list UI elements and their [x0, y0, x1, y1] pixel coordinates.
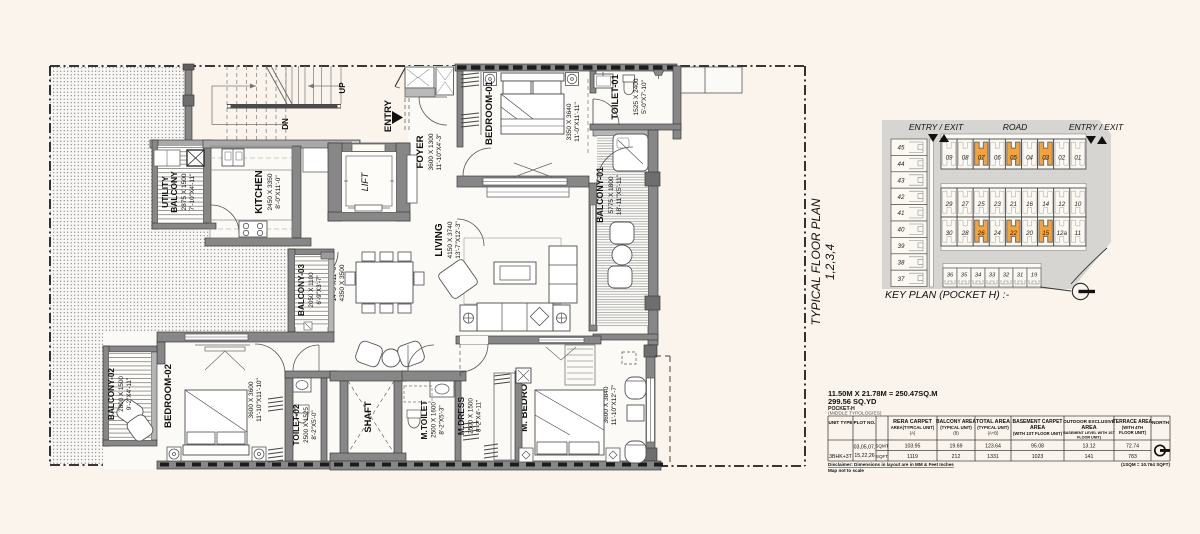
- svg-text:3BHK+3T: 3BHK+3T: [829, 454, 852, 460]
- svg-text:11'-10"X12'-7": 11'-10"X12'-7": [611, 384, 618, 425]
- svg-text:1525 X 2400: 1525 X 2400: [633, 78, 640, 115]
- svg-text:OUTDOOR EXCLUSIVE: OUTDOOR EXCLUSIVE: [1063, 419, 1115, 424]
- svg-text:BALCONY-02: BALCONY-02: [107, 368, 116, 420]
- svg-text:32: 32: [1003, 273, 1010, 279]
- svg-text:NORTH: NORTH: [1152, 420, 1170, 426]
- svg-text:35: 35: [961, 273, 968, 279]
- svg-text:34: 34: [975, 273, 981, 279]
- svg-text:40: 40: [898, 227, 905, 234]
- svg-text:5'-0"X7'-10": 5'-0"X7'-10": [641, 79, 648, 114]
- svg-text:KITCHEN: KITCHEN: [254, 170, 265, 214]
- svg-text:212: 212: [952, 454, 961, 460]
- svg-text:(1SQM = 10.764 SQFT): (1SQM = 10.764 SQFT): [1121, 462, 1170, 467]
- svg-text:BEDROOM-01: BEDROOM-01: [484, 80, 495, 145]
- svg-text:2800 X 1500: 2800 X 1500: [118, 376, 125, 412]
- svg-text:2500 X 1600: 2500 X 1600: [431, 402, 438, 438]
- svg-text:09: 09: [946, 155, 953, 162]
- svg-text:33: 33: [989, 273, 996, 279]
- svg-text:7'-10"X4'-11": 7'-10"X4'-11": [189, 173, 196, 211]
- svg-text:LIFT: LIFT: [360, 171, 370, 191]
- svg-text:TYPICAL FLOOR PLAN: TYPICAL FLOOR PLAN: [809, 198, 823, 325]
- svg-text:24: 24: [993, 230, 1001, 237]
- svg-text:1331: 1331: [987, 454, 999, 460]
- svg-text:2050 X 1100: 2050 X 1100: [308, 272, 315, 308]
- svg-text:(B): (B): [953, 431, 959, 436]
- svg-text:299.56 SQ.YD: 299.56 SQ.YD: [828, 397, 877, 406]
- svg-text:10: 10: [1074, 201, 1081, 208]
- svg-text:BALCONY: BALCONY: [169, 171, 179, 213]
- svg-text:44: 44: [898, 161, 905, 168]
- svg-text:BALCONY-01: BALCONY-01: [595, 167, 605, 223]
- svg-text:8'-2"X4'-11": 8'-2"X4'-11": [476, 400, 483, 432]
- svg-text:41: 41: [898, 210, 905, 217]
- svg-text:2500 X 1500: 2500 X 1500: [468, 398, 475, 434]
- svg-text:Disclaimer: Dimensions in layo: Disclaimer: Dimensions in layout are in …: [828, 462, 954, 467]
- svg-text:3350 X 3640: 3350 X 3640: [566, 103, 573, 140]
- svg-text:13'-7"X12'-3": 13'-7"X12'-3": [455, 221, 462, 259]
- svg-text:ENTRY / EXIT: ENTRY / EXIT: [1069, 122, 1124, 132]
- svg-text:22: 22: [1009, 230, 1017, 237]
- svg-text:6'-9"X3'-7": 6'-9"X3'-7": [316, 275, 323, 304]
- svg-text:11.50M X 21.78M = 250.47SQ.M: 11.50M X 21.78M = 250.47SQ.M: [828, 389, 937, 398]
- svg-text:(A+B): (A+B): [988, 431, 999, 436]
- svg-text:23: 23: [993, 201, 1001, 208]
- svg-text:783: 783: [1128, 454, 1137, 460]
- svg-text:123.64: 123.64: [985, 444, 1001, 450]
- svg-text:19: 19: [1031, 273, 1038, 279]
- svg-text:19.69: 19.69: [950, 444, 963, 450]
- svg-text:FLOOR UNIT): FLOOR UNIT): [1077, 436, 1102, 440]
- svg-text:TOILET-01: TOILET-01: [610, 74, 620, 119]
- svg-text:2875 X 1500: 2875 X 1500: [181, 173, 188, 210]
- svg-text:AREA(TYPICAL UNIT): AREA(TYPICAL UNIT): [891, 425, 935, 430]
- svg-text:29: 29: [945, 201, 953, 208]
- svg-text:12: 12: [1058, 201, 1065, 208]
- svg-text:UP: UP: [338, 82, 347, 94]
- svg-text:11'-10"X4'-3": 11'-10"X4'-3": [436, 133, 443, 171]
- svg-text:28: 28: [961, 230, 969, 237]
- svg-text:27: 27: [961, 201, 969, 208]
- svg-text:PLOT NO.: PLOT NO.: [854, 420, 876, 425]
- svg-text:KEY PLAN (POCKET H) :-: KEY PLAN (POCKET H) :-: [885, 289, 1010, 301]
- svg-text:08: 08: [962, 155, 969, 162]
- svg-text:03,05,07,: 03,05,07,: [854, 445, 876, 451]
- svg-text:DN: DN: [281, 118, 290, 130]
- svg-text:(TYPICAL UNIT): (TYPICAL UNIT): [977, 425, 1009, 430]
- svg-text:8'-0"X11'-0": 8'-0"X11'-0": [275, 175, 282, 209]
- svg-text:04: 04: [1026, 155, 1033, 162]
- svg-text:8'-2"X5'-0": 8'-2"X5'-0": [311, 410, 318, 439]
- svg-text:103.95: 103.95: [905, 444, 921, 450]
- svg-text:95.08: 95.08: [1031, 444, 1044, 450]
- svg-text:11'-0"X11'-11": 11'-0"X11'-11": [574, 102, 581, 142]
- svg-text:BALCONY-03: BALCONY-03: [297, 264, 306, 316]
- svg-text:4150 X 3740: 4150 X 3740: [447, 221, 454, 258]
- svg-text:03: 03: [1042, 155, 1049, 162]
- svg-text:30: 30: [946, 230, 953, 237]
- svg-text:5775 X 1800: 5775 X 1800: [608, 176, 615, 213]
- svg-text:05: 05: [1010, 155, 1017, 162]
- svg-text:ENTRY / EXIT: ENTRY / EXIT: [909, 122, 964, 132]
- svg-text:FLOOR UNIT): FLOOR UNIT): [1119, 430, 1147, 435]
- svg-text:ROAD: ROAD: [1003, 122, 1028, 132]
- svg-text:9'-2"X4'-11": 9'-2"X4'-11": [126, 378, 133, 410]
- svg-text:25: 25: [977, 201, 985, 208]
- svg-text:M.TOILET: M.TOILET: [419, 400, 429, 440]
- svg-text:SQMT: SQMT: [875, 444, 888, 449]
- svg-text:45: 45: [898, 145, 905, 152]
- svg-text:06: 06: [994, 155, 1001, 162]
- svg-text:42: 42: [898, 194, 905, 201]
- svg-text:14: 14: [1042, 201, 1049, 208]
- svg-text:36: 36: [947, 273, 954, 279]
- svg-text:1119: 1119: [907, 454, 918, 460]
- svg-text:BEDROOM-02: BEDROOM-02: [163, 364, 174, 428]
- svg-text:13.12: 13.12: [1083, 444, 1096, 450]
- svg-text:(TYPICAL UNIT): (TYPICAL UNIT): [940, 425, 972, 430]
- svg-text:72.74: 72.74: [1126, 444, 1139, 450]
- svg-text:SQFT: SQFT: [876, 454, 888, 459]
- svg-text:1023: 1023: [1032, 454, 1044, 460]
- svg-text:141: 141: [1085, 454, 1094, 460]
- svg-text:(WITH 1ST FLOOR UNIT): (WITH 1ST FLOOR UNIT): [1013, 431, 1063, 436]
- svg-text:20: 20: [1025, 230, 1033, 237]
- svg-text:BASEMENT LEVEL WITH 1ST: BASEMENT LEVEL WITH 1ST: [1063, 431, 1116, 435]
- svg-text:37: 37: [898, 276, 905, 283]
- svg-text:01: 01: [1074, 155, 1081, 162]
- svg-text:1,2,3,4: 1,2,3,4: [823, 244, 837, 281]
- svg-text:26: 26: [977, 230, 985, 237]
- svg-text:2450 X 3350: 2450 X 3350: [267, 173, 274, 210]
- svg-text:2500 X 1525: 2500 X 1525: [303, 407, 310, 443]
- svg-text:38: 38: [898, 259, 905, 266]
- svg-text:FOYER: FOYER: [415, 135, 426, 168]
- svg-text:LIVING: LIVING: [434, 223, 445, 257]
- svg-text:18'-11"X5'-11": 18'-11"X5'-11": [616, 174, 623, 215]
- svg-text:(A): (A): [910, 431, 916, 436]
- svg-text:8'-2"X5'-3": 8'-2"X5'-3": [439, 405, 446, 434]
- svg-text:4350 X 3500: 4350 X 3500: [339, 264, 346, 301]
- svg-text:11'-10"X11'-10": 11'-10"X11'-10": [256, 377, 263, 421]
- svg-text:15,22,26: 15,22,26: [854, 453, 874, 459]
- svg-text:UNIT TYPE: UNIT TYPE: [829, 420, 853, 425]
- svg-text:39: 39: [898, 243, 905, 250]
- svg-text:TOILET-02: TOILET-02: [291, 404, 301, 446]
- svg-text:SHAFT: SHAFT: [362, 401, 373, 433]
- svg-text:43: 43: [898, 177, 905, 184]
- svg-text:12a: 12a: [1057, 230, 1068, 237]
- svg-text:Map not to scale: Map not to scale: [828, 468, 864, 473]
- svg-text:16: 16: [1026, 201, 1033, 208]
- svg-text:3600 X 1300: 3600 X 1300: [428, 133, 435, 170]
- svg-text:21: 21: [1009, 201, 1017, 208]
- svg-text:11: 11: [1075, 230, 1081, 237]
- svg-text:3600 X 3600: 3600 X 3600: [248, 381, 255, 418]
- svg-text:02: 02: [1058, 155, 1065, 162]
- svg-text:31: 31: [1017, 273, 1023, 279]
- svg-text:15: 15: [1042, 230, 1049, 237]
- svg-text:07: 07: [978, 155, 985, 162]
